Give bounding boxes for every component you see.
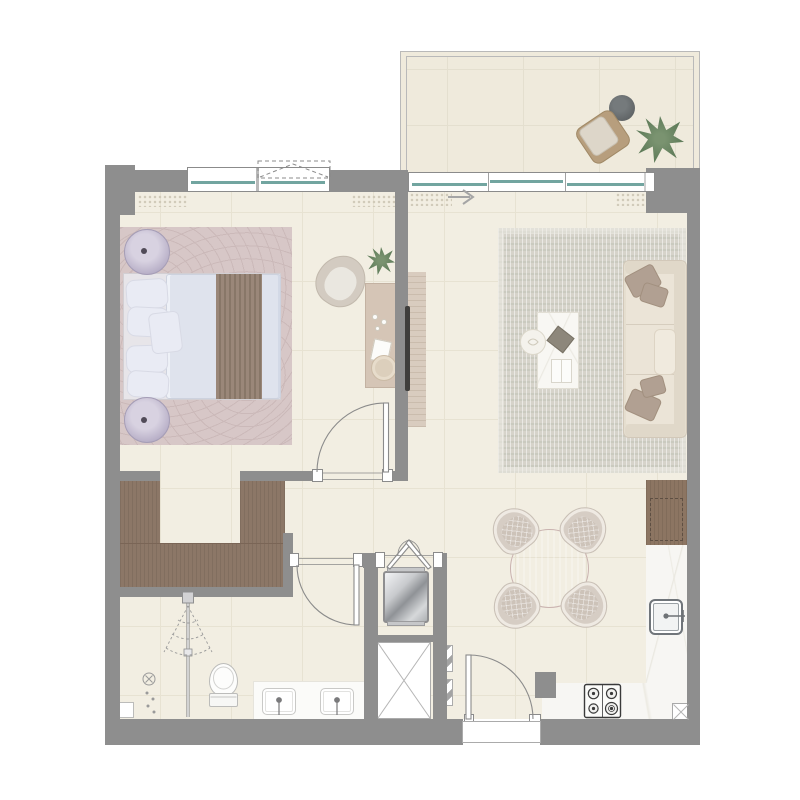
window-glazing (261, 181, 325, 184)
wall-bathroom-north (118, 587, 283, 597)
washer-hose-bar (387, 621, 425, 626)
closet-wardrobe-front (120, 543, 285, 587)
curtain-hatch (352, 195, 398, 207)
wall-bedroom-south (118, 471, 160, 481)
perfume-bottle-icon (372, 314, 378, 320)
washer-hose-bar (387, 567, 425, 572)
tv-media-panel (408, 272, 426, 427)
curtain-hatch (410, 193, 452, 206)
bed-pillow (125, 278, 169, 311)
perfume-bottle-icon (375, 326, 380, 331)
book-spine-line (561, 360, 562, 382)
bed-throw-blanket (216, 274, 262, 399)
wall-right (687, 213, 700, 745)
wall-bedroom-south (240, 471, 318, 481)
service-shaft (377, 642, 431, 719)
bed-accent-pillow (148, 310, 184, 354)
wall-bottom-left (105, 719, 463, 745)
door-jamb (353, 553, 363, 567)
perfume-bottle-icon (381, 319, 387, 325)
bedside-table (124, 229, 170, 275)
door-jamb (433, 552, 443, 568)
door-jamb (312, 469, 323, 482)
kitchen-sink (649, 599, 683, 635)
closet-wardrobe-left (120, 480, 160, 543)
toilet-icon (209, 663, 238, 696)
door-jamb (289, 553, 299, 567)
kitchen-counter-bottom (542, 683, 687, 719)
closet-wardrobe-right (240, 480, 285, 543)
sofa-back-cushion (654, 329, 676, 375)
wall-bottom-right (540, 719, 700, 745)
bathroom-basin (262, 688, 296, 715)
vanity-stool (371, 355, 397, 381)
door-jamb (375, 552, 385, 568)
bedside-lamp-icon (141, 417, 147, 423)
entrance-threshold (462, 721, 541, 743)
sliding-door-glazing (567, 183, 644, 186)
tv-icon (405, 306, 410, 391)
side-dish-table (520, 329, 546, 355)
wall-utility-west (364, 558, 378, 719)
sliding-door-glazing (490, 180, 563, 183)
wall-utility-east (433, 553, 447, 719)
bedside-table (124, 397, 170, 443)
window-glazing (191, 181, 255, 184)
wall-kitchen-stub (535, 672, 556, 698)
wall-left (105, 165, 120, 745)
curtain-hatch (138, 195, 188, 207)
sliding-door-glazing (412, 183, 487, 186)
toilet-tank (209, 693, 238, 707)
balcony-railing (406, 56, 694, 174)
door-jamb (382, 469, 393, 482)
washing-machine-icon (383, 571, 429, 623)
floor-plan (0, 0, 800, 800)
wall-utility-divider (378, 635, 433, 642)
kitchen-upper-cabinet-dashed (650, 498, 683, 541)
sofa-seat-divider (626, 324, 674, 325)
window-mullion (256, 168, 259, 191)
wall-top-left (105, 170, 187, 192)
bedside-lamp-icon (141, 248, 147, 254)
bed-pillow (126, 370, 170, 400)
bathroom-basin (320, 688, 354, 715)
shower-shelf-box (118, 702, 134, 718)
